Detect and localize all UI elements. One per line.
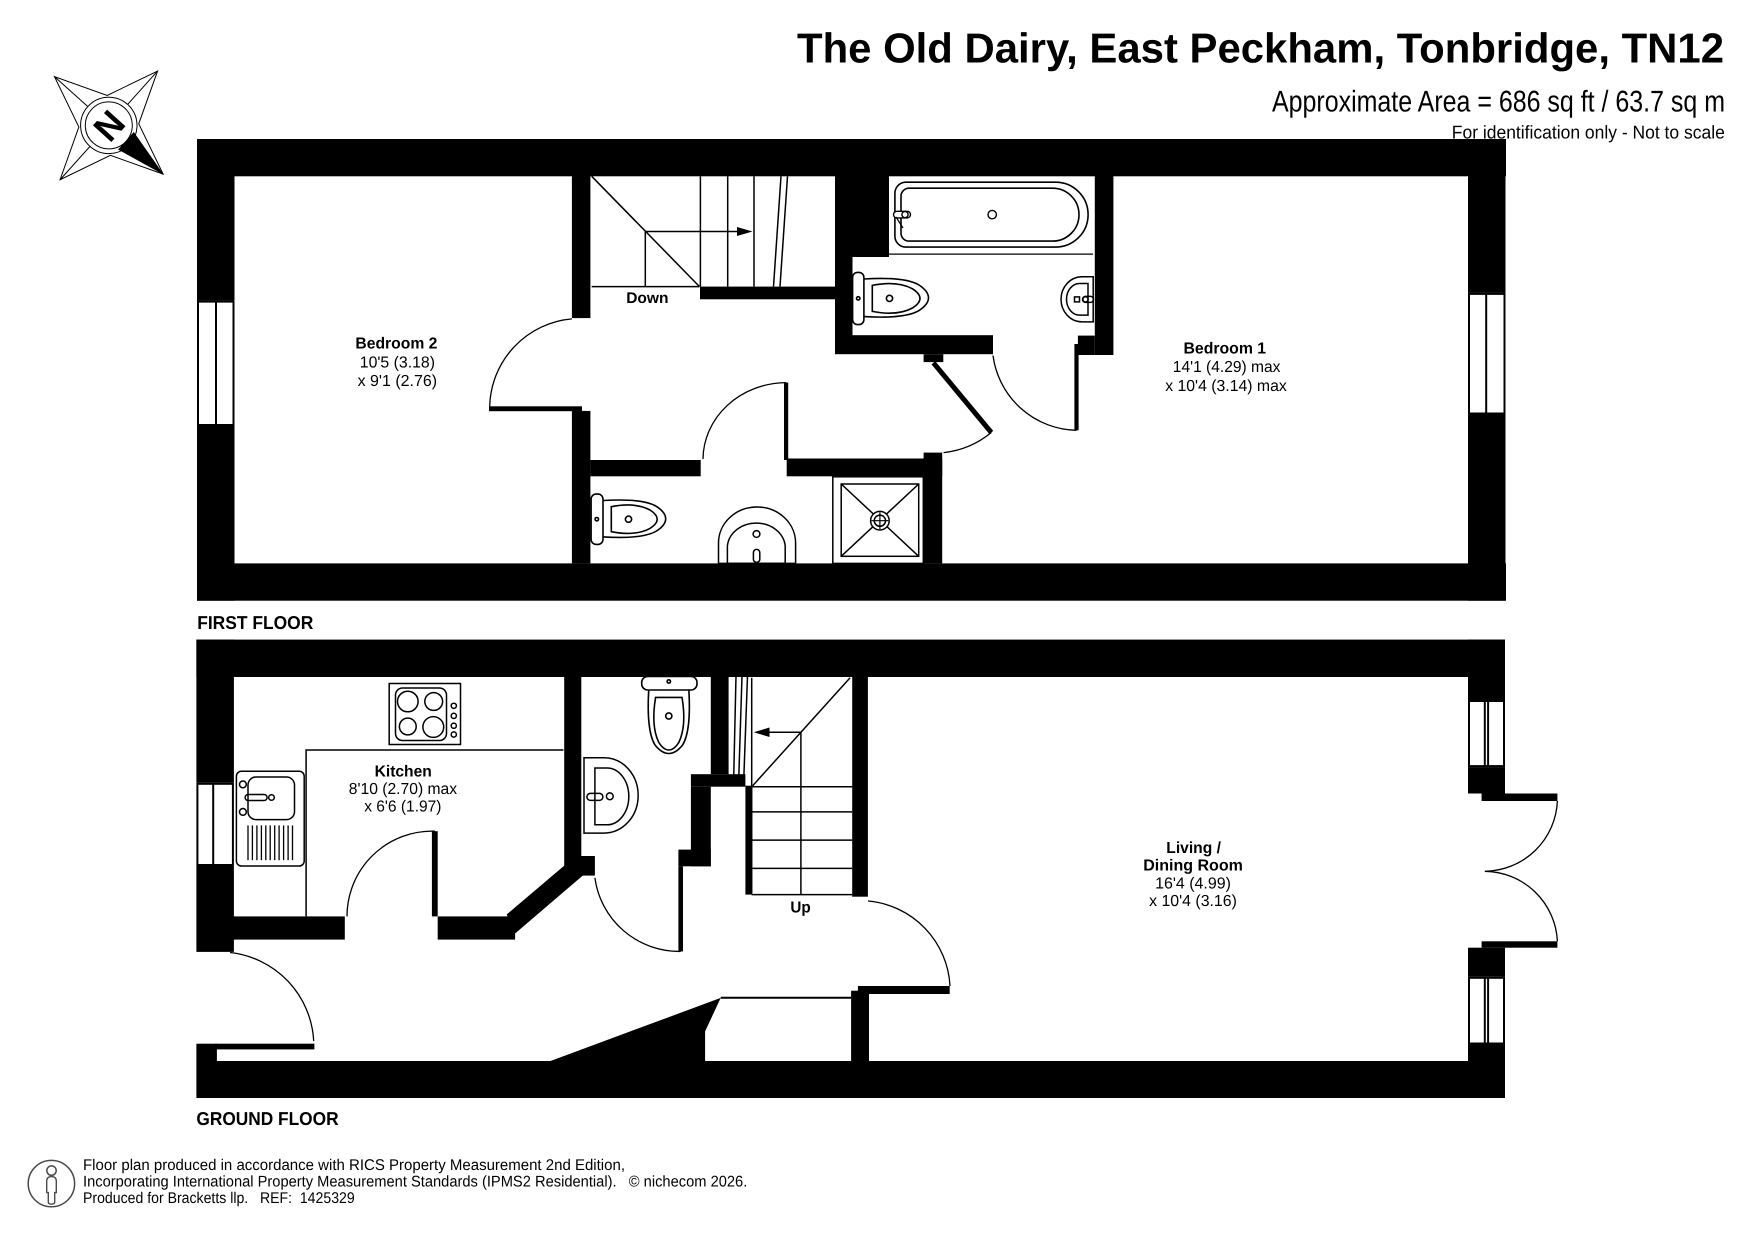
svg-text:Bedroom 2: Bedroom 2 [355,336,437,353]
svg-text:8'10 (2.70) max: 8'10 (2.70) max [349,781,457,798]
svg-text:FIRST FLOOR: FIRST FLOOR [197,612,314,633]
svg-text:Bedroom 1: Bedroom 1 [1184,341,1267,358]
svg-text:x 10'4 (3.16): x 10'4 (3.16) [1149,893,1237,910]
svg-text:Floor plan produced in accorda: Floor plan produced in accordance with R… [83,1157,625,1174]
svg-text:Approximate Area = 686 sq ft /: Approximate Area = 686 sq ft / 63.7 sq m [1272,85,1725,118]
svg-text:Kitchen: Kitchen [375,763,432,780]
svg-text:x 10'4 (3.14) max: x 10'4 (3.14) max [1165,378,1287,395]
svg-text:Produced for Bracketts llp.: Produced for Bracketts llp. REF: 1425329 [83,1190,355,1207]
svg-text:10'5 (3.18): 10'5 (3.18) [360,355,435,372]
svg-text:Down: Down [626,290,668,307]
svg-text:Living /: Living / [1166,840,1221,857]
svg-text:14'1 (4.29) max: 14'1 (4.29) max [1173,359,1281,376]
svg-text:Dining Room: Dining Room [1143,858,1243,875]
svg-text:The Old Dairy, East Peckham, T: The Old Dairy, East Peckham, Tonbridge, … [797,25,1724,72]
svg-text:x 9'1 (2.76): x 9'1 (2.76) [358,373,438,390]
svg-text:Up: Up [790,900,811,917]
svg-text:Incorporating International Pr: Incorporating International Property Mea… [83,1173,747,1190]
svg-text:GROUND FLOOR: GROUND FLOOR [196,1108,339,1129]
svg-text:x 6'6 (1.97): x 6'6 (1.97) [364,798,441,815]
svg-text:16'4 (4.99): 16'4 (4.99) [1155,875,1231,892]
